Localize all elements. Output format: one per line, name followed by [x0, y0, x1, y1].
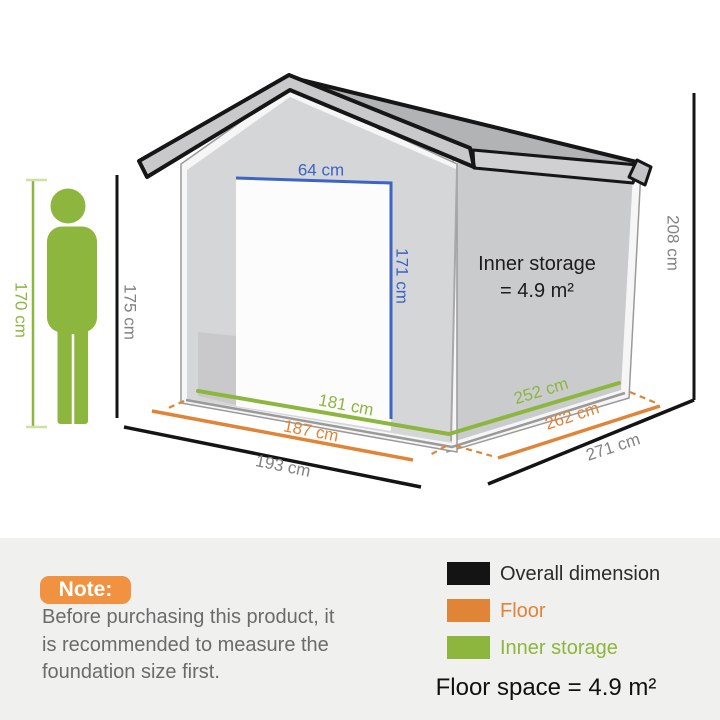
- person-height-label: 170 cm: [13, 282, 30, 338]
- door-panel: [236, 177, 391, 431]
- legend-swatch-overall-dimension: [447, 562, 490, 585]
- reference-height-label: 175 cm: [122, 284, 139, 340]
- info-panel: Note: Before purchasing this product, it…: [0, 538, 720, 720]
- floor-space-text: Floor space = 4.9 m²: [436, 674, 657, 702]
- legend-label-inner-storage: Inner storage: [500, 636, 618, 659]
- inner-storage-title: Inner storage: [478, 251, 596, 278]
- inner-storage-value: = 4.9 m²: [478, 278, 596, 305]
- legend-swatch-inner-storage: [447, 636, 490, 659]
- legend-label-floor: Floor: [500, 599, 546, 622]
- note-badge: Note:: [40, 576, 131, 604]
- note-line: Before purchasing this product, it: [42, 604, 334, 632]
- inner-storage-callout: Inner storage = 4.9 m²: [478, 251, 596, 305]
- note-line: foundation size first.: [42, 659, 334, 687]
- person-torso: [47, 227, 97, 333]
- overall-height-label: 208 cm: [665, 215, 682, 271]
- person-head: [51, 189, 86, 224]
- legend-swatch-floor: [447, 599, 490, 622]
- person-figure: [47, 189, 97, 425]
- door-height-label: 171 cm: [394, 248, 411, 304]
- note-line: is recommended to measure the: [42, 632, 334, 660]
- note-text: Before purchasing this product, it is re…: [42, 604, 334, 687]
- door-width-label: 64 cm: [298, 162, 344, 179]
- note-badge-label: Note:: [59, 578, 113, 602]
- legend-label-overall-dimension: Overall dimension: [500, 562, 660, 585]
- dimension-diagram: 170 cm 175 cm 64 cm 171 cm 181 cm 187 cm…: [0, 0, 720, 538]
